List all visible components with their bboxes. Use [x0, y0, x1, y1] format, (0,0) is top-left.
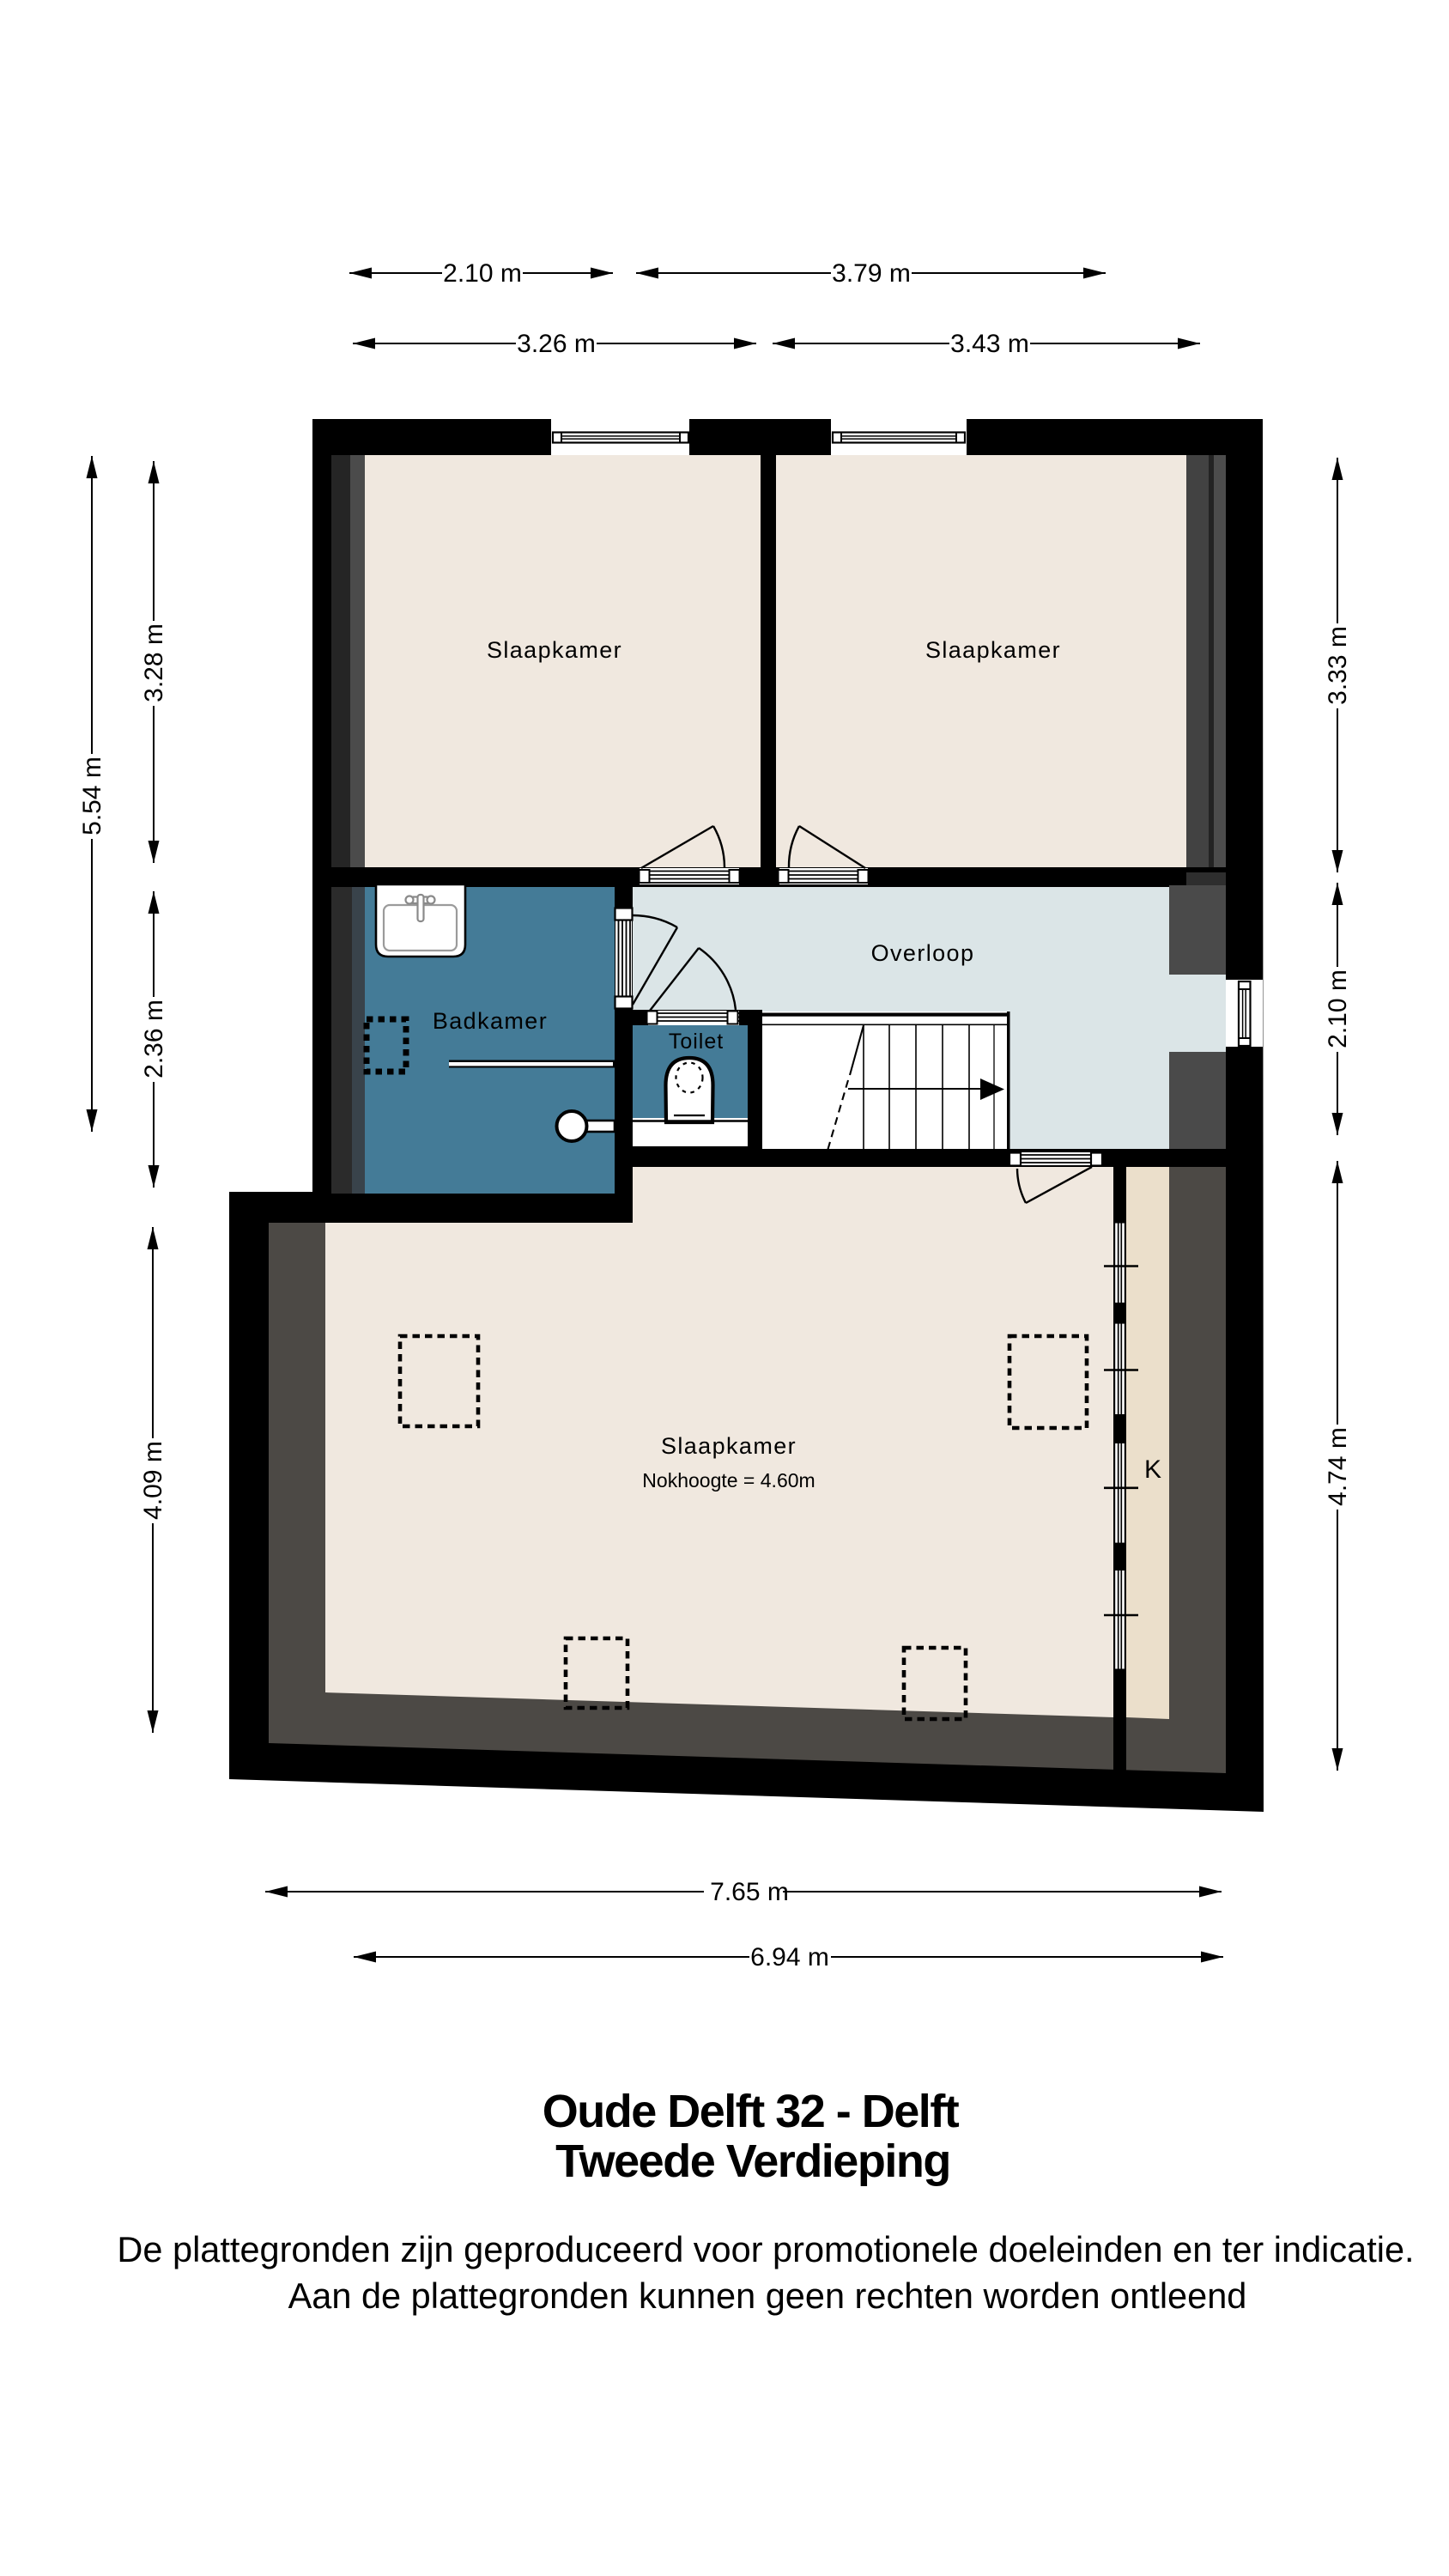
svg-text:7.65 m: 7.65 m — [710, 1878, 789, 1906]
svg-text:2.10 m: 2.10 m — [443, 259, 522, 288]
svg-text:3.26 m: 3.26 m — [517, 330, 596, 358]
svg-text:3.79 m: 3.79 m — [832, 259, 911, 288]
svg-text:2.10 m: 2.10 m — [1324, 969, 1352, 1048]
svg-text:3.43 m: 3.43 m — [950, 330, 1029, 358]
svg-text:Slaapkamer: Slaapkamer — [925, 637, 1061, 663]
svg-text:5.54 m: 5.54 m — [78, 756, 106, 835]
svg-text:Nokhoogte = 4.60m: Nokhoogte = 4.60m — [642, 1469, 815, 1492]
svg-text:4.74 m: 4.74 m — [1324, 1427, 1352, 1506]
svg-text:Aan de plattegronden kunnen ge: Aan de plattegronden kunnen geen rechten… — [288, 2275, 1247, 2316]
svg-text:K: K — [1144, 1455, 1161, 1484]
svg-text:3.28 m: 3.28 m — [140, 623, 168, 702]
svg-text:3.33 m: 3.33 m — [1324, 626, 1352, 705]
svg-text:4.09 m: 4.09 m — [139, 1441, 167, 1520]
svg-text:2.36 m: 2.36 m — [140, 999, 168, 1078]
svg-text:Toilet: Toilet — [669, 1030, 724, 1054]
svg-text:Slaapkamer: Slaapkamer — [661, 1433, 797, 1459]
svg-text:Badkamer: Badkamer — [433, 1008, 548, 1034]
svg-text:Overloop: Overloop — [871, 940, 975, 966]
svg-text:Tweede Verdieping: Tweede Verdieping — [555, 2136, 950, 2187]
svg-text:6.94 m: 6.94 m — [750, 1943, 829, 1971]
svg-text:De plattegronden zijn geproduc: De plattegronden zijn geproduceerd voor … — [117, 2229, 1414, 2269]
svg-text:Slaapkamer: Slaapkamer — [487, 637, 622, 663]
svg-text:Oude Delft 32 - Delft: Oude Delft 32 - Delft — [543, 2086, 960, 2137]
